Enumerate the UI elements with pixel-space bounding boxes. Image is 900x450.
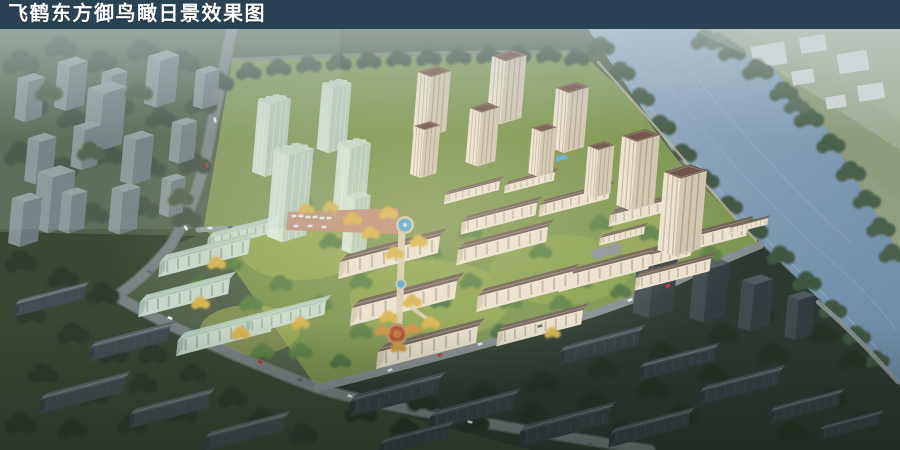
title-bar: 飞鹤东方御鸟瞰日景效果图 <box>0 0 900 29</box>
northwest-haze <box>0 29 340 229</box>
rendering-title: 飞鹤东方御鸟瞰日景效果图 <box>0 0 266 29</box>
rendering-viewport: 飞鹤东方御鸟瞰日景效果图 <box>0 0 900 450</box>
bottom-vignette <box>0 320 900 450</box>
aerial-rendering <box>0 0 900 450</box>
